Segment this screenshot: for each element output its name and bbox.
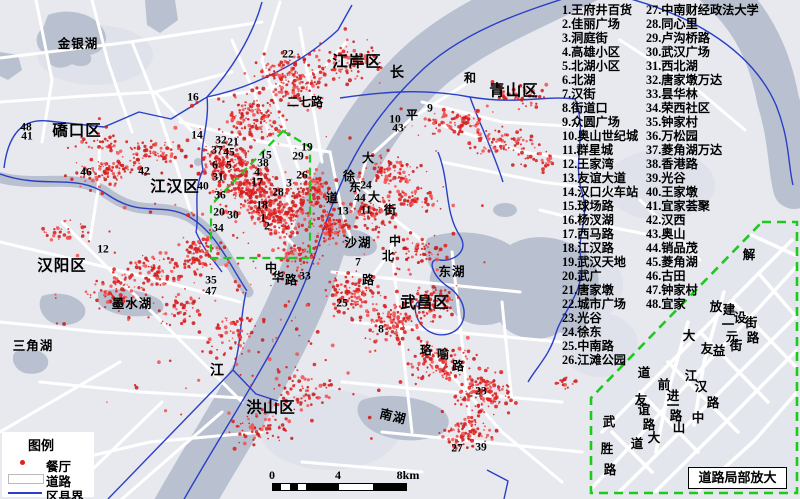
legend-title: 图例: [28, 435, 94, 454]
legend-list-item: 30.武汉广场: [646, 45, 759, 59]
legend-list-item: 48.宜家: [646, 297, 759, 311]
place-number-label: 12: [97, 244, 109, 256]
scale-segment: [281, 484, 289, 490]
legend-list-item: 42.汉西: [646, 213, 759, 227]
legend-list-item: 3.洞庭街: [562, 31, 638, 45]
inset-road-label: 道: [638, 367, 651, 380]
inset-road-label: 路: [604, 464, 617, 477]
legend-list-item: 34.荣西社区: [646, 101, 759, 115]
place-number-label: 36: [214, 190, 226, 202]
legend-list-item: 12.王家湾: [562, 157, 638, 171]
legend-list-item: 14.汉口火车站: [562, 185, 638, 199]
legend-list-item: 21.唐家墩: [562, 283, 638, 297]
place-number-label: 37: [211, 145, 223, 157]
legend-item-road: 道路: [2, 470, 94, 485]
district-label: 洪山区: [246, 400, 296, 416]
place-list-column-2: 27.中南财经政法大学28.同心里29.卢沟桥路30.武汉广场31.西北湖32.…: [646, 3, 759, 311]
legend-list-item: 35.钟家村: [646, 115, 759, 129]
place-number-label: 14: [191, 130, 203, 142]
district-label: 江岸区: [332, 54, 382, 70]
inset-road-label: 友: [701, 343, 714, 356]
place-number-label: 11: [361, 205, 372, 217]
legend-list-item: 19.武汉天地: [562, 255, 638, 269]
legend-list-item: 6.北湖: [562, 73, 638, 87]
place-number-label: 47: [205, 286, 217, 298]
legend-item-boundary: 区县界: [2, 485, 94, 499]
legend-list-item: 39.光谷: [646, 171, 759, 185]
place-number-label: 38: [257, 158, 269, 170]
place-number-label: 43: [392, 123, 404, 135]
inset-road-label: 路: [707, 397, 720, 410]
legend-list-item: 7.汉街: [562, 87, 638, 101]
lake-label: 东湖: [438, 266, 465, 279]
legend-list-item: 18.江汉路: [562, 241, 638, 255]
place-number-label: 7: [355, 257, 361, 269]
place-number-label: 33: [299, 271, 311, 283]
place-number-label: 46: [80, 167, 92, 179]
lake-label: 三角湖: [13, 340, 54, 353]
scale-bar: 048km: [268, 468, 428, 494]
legend-list-item: 1.王府井百货: [562, 3, 638, 17]
place-number-label: 42: [138, 166, 150, 178]
road-label: 路: [452, 360, 464, 372]
legend-list-item: 32.唐家墩万达: [646, 73, 759, 87]
inset-road-label: 路: [747, 332, 760, 345]
inset-road-label: 山: [673, 422, 686, 435]
place-number-label: 23: [475, 386, 487, 398]
place-list-column-1: 1.王府井百货2.佳丽广场3.洞庭街4.高雄小区5.北湖小区6.北湖7.汉街8.…: [562, 3, 638, 367]
legend-list-item: 22.城市广场: [562, 297, 638, 311]
place-number-label: 24: [360, 180, 372, 192]
district-label: 青山区: [489, 83, 539, 99]
place-number-label: 25: [336, 298, 348, 310]
legend-list-item: 33.昙华林: [646, 87, 759, 101]
place-number-label: 3: [286, 178, 292, 190]
inset-road-label: 武: [603, 416, 616, 429]
place-number-label: 2: [264, 221, 270, 233]
legend-list-item: 31.西北湖: [646, 59, 759, 73]
road-label: 和: [464, 72, 476, 84]
legend-item-label: 区县界: [46, 486, 84, 499]
inset-road-label: 胜: [601, 443, 614, 456]
legend-list-item: 25.中南路: [562, 339, 638, 353]
legend-list-item: 37.菱角湖万达: [646, 143, 759, 157]
scale-bar-segments: [272, 483, 407, 491]
place-number-label: 28: [272, 187, 284, 199]
lake-label: 墨水湖: [112, 298, 153, 311]
legend-list-item: 15.球场路: [562, 199, 638, 213]
legend-item-dot: 餐厅: [2, 455, 94, 470]
road-label: 街: [384, 204, 396, 216]
legend-list-item: 46.古田: [646, 269, 759, 283]
lake-label: 沙湖: [344, 237, 371, 250]
place-number-label: 34: [212, 223, 224, 235]
boundary-swatch: [8, 492, 42, 494]
inset-title-box: 道路局部放大: [688, 467, 787, 489]
legend-list-item: 29.卢沟桥路: [646, 31, 759, 45]
road-label: 二七路: [287, 96, 323, 108]
place-number-label: 40: [197, 181, 209, 193]
place-number-label: 8: [378, 324, 384, 336]
legend-list-item: 4.高雄小区: [562, 45, 638, 59]
place-number-label: 20: [213, 207, 225, 219]
river-label: 长: [390, 67, 404, 81]
legend-list-item: 23.光谷: [562, 311, 638, 325]
legend-list-item: 45.菱角湖: [646, 255, 759, 269]
legend-list-item: 38.香港路: [646, 157, 759, 171]
legend-list-item: 5.北湖小区: [562, 59, 638, 73]
scale-segment: [273, 484, 281, 490]
place-number-label: 31: [212, 172, 224, 184]
legend-list-item: 47.钟家村: [646, 283, 759, 297]
road-label: 路: [285, 274, 297, 286]
scale-segment: [290, 484, 298, 490]
place-number-label: 39: [475, 442, 487, 454]
place-number-label: 29: [292, 151, 304, 163]
place-number-label: 27: [451, 443, 463, 455]
legend-list-item: 9.众圆广场: [562, 115, 638, 129]
inset-road-label: 谊: [638, 404, 651, 417]
place-number-label: 13: [337, 206, 349, 218]
legend-list-item: 27.中南财经政法大学: [646, 3, 759, 17]
legend-list-item: 28.同心里: [646, 17, 759, 31]
scale-label: 0: [269, 468, 275, 483]
road-label: 珞: [420, 344, 432, 356]
lake-label: 金银湖: [58, 38, 99, 51]
legend-list-item: 20.武广: [562, 269, 638, 283]
place-number-label: 17: [251, 177, 263, 189]
scale-segment: [373, 484, 406, 490]
road-label: 路: [362, 274, 374, 286]
road-label: 东: [349, 181, 361, 193]
place-number-label: 18: [256, 200, 268, 212]
legend-list-item: 36.万松园: [646, 129, 759, 143]
place-number-label: 26: [296, 170, 308, 182]
district-label: 汉阳区: [37, 258, 87, 274]
road-label: 喻: [437, 348, 449, 360]
inset-title: 道路局部放大: [698, 470, 776, 485]
road-label: 华: [272, 271, 284, 283]
legend-list-item: 24.徐东: [562, 325, 638, 339]
legend-list-item: 8.街道口: [562, 101, 638, 115]
river-label: 江: [210, 365, 224, 379]
road-label: 中: [389, 235, 401, 247]
legend-list-item: 10.奥山世纪城: [562, 129, 638, 143]
legend-list-item: 13.友谊大道: [562, 171, 638, 185]
road-label: 北: [382, 250, 394, 262]
legend-box: 图例 餐厅道路区县界: [2, 432, 94, 497]
inset-road-label: 大: [683, 330, 696, 343]
road-label: 平: [406, 109, 418, 121]
place-number-label: 30: [227, 210, 239, 222]
road-swatch: [8, 474, 44, 484]
road-label: 大: [368, 191, 380, 203]
scale-segment: [298, 484, 306, 490]
legend-list-item: 41.宜家荟聚: [646, 199, 759, 213]
district-label: 武昌区: [400, 295, 450, 311]
place-number-label: 6: [212, 160, 218, 172]
road-label: 道: [326, 192, 338, 204]
district-label: 礄口区: [52, 123, 102, 139]
legend-list-item: 11.群星城: [562, 143, 638, 157]
scale-segment: [306, 484, 339, 490]
inset-road-label: 路: [643, 419, 656, 432]
legend-list-item: 40.王家墩: [646, 185, 759, 199]
inset-road-label: 街: [730, 340, 743, 353]
inset-road-label: 中: [692, 412, 705, 425]
scale-label: 8km: [397, 468, 420, 483]
place-number-label: 16: [187, 92, 199, 104]
place-number-label: 45: [223, 147, 235, 159]
place-number-label: 48: [20, 122, 32, 134]
legend-list-item: 17.西马路: [562, 227, 638, 241]
legend-list-item: 16.杨汊湖: [562, 213, 638, 227]
place-number-label: 5: [226, 160, 232, 172]
inset-road-label: 街: [745, 317, 758, 330]
dot-swatch: [20, 460, 25, 465]
inset-road-label: 汉: [695, 381, 708, 394]
legend-list-item: 44.销品茂: [646, 241, 759, 255]
scale-label: 4: [335, 468, 341, 483]
district-label: 江汉区: [150, 179, 200, 195]
wuhan-restaurant-map: 礄口区江岸区江汉区青山区汉阳区武昌区洪山区金银湖墨水湖三角湖沙湖东湖南湖长江二七…: [0, 0, 800, 499]
place-number-label: 9: [427, 103, 433, 115]
inset-road-label: 益: [713, 345, 726, 358]
inset-road-label: 大: [648, 432, 661, 445]
inset-road-label: 道: [631, 438, 644, 451]
scale-segment: [339, 484, 372, 490]
place-number-label: 44: [354, 193, 366, 205]
legend-list-item: 2.佳丽广场: [562, 17, 638, 31]
place-number-label: 22: [282, 49, 294, 61]
road-label: 大: [362, 152, 374, 164]
legend-list-item: 26.江滩公园: [562, 353, 638, 367]
legend-list-item: 43.奥山: [646, 227, 759, 241]
